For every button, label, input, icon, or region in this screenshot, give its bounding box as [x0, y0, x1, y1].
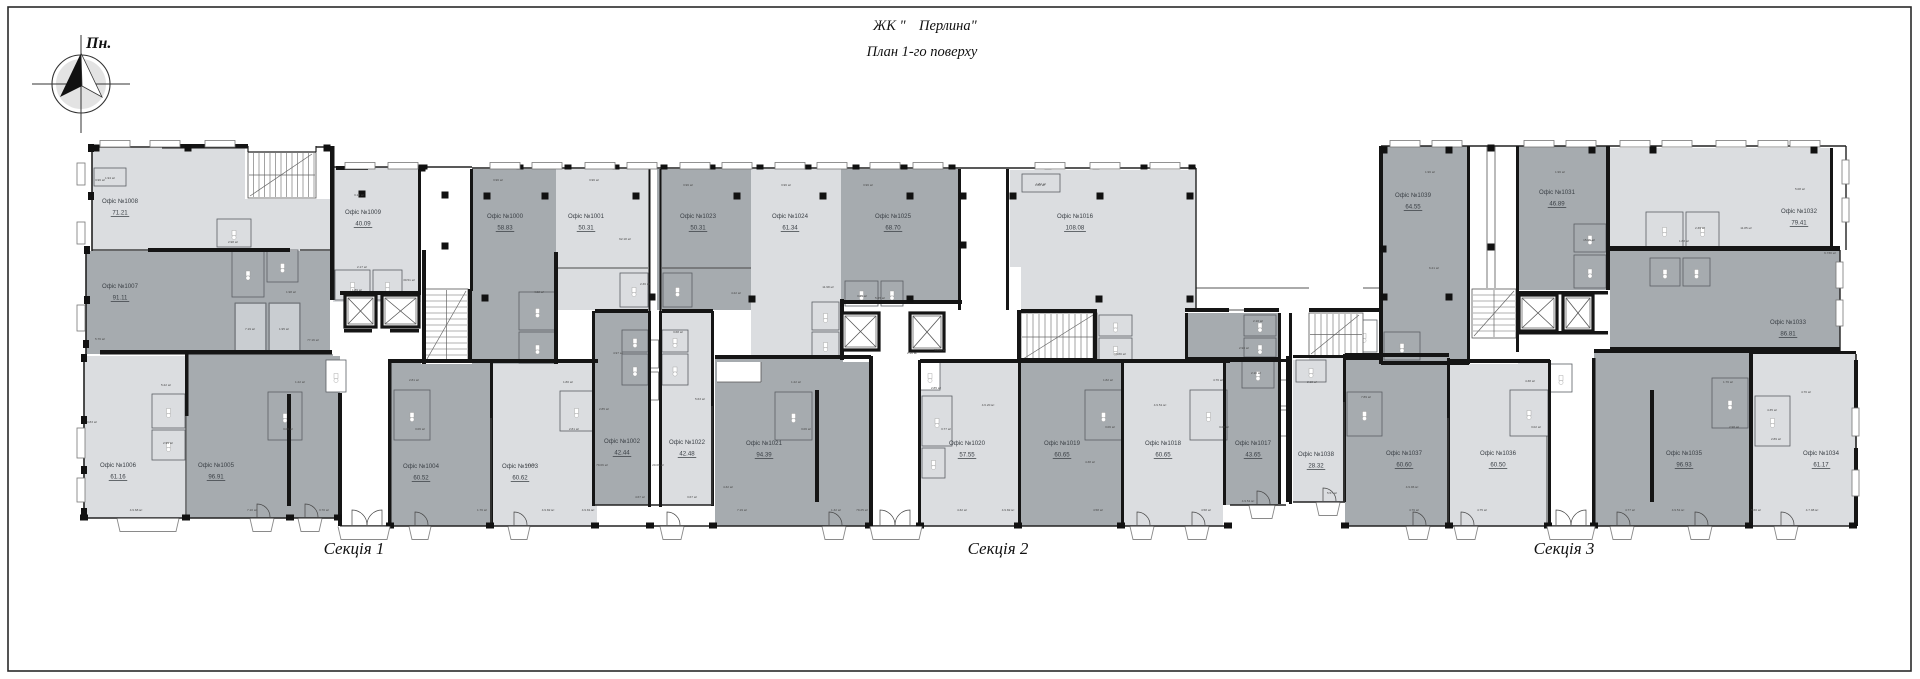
svg-text:3.83 м²: 3.83 м² — [87, 420, 97, 424]
svg-text:ЖК ": ЖК " — [872, 18, 907, 34]
svg-text:28.32: 28.32 — [1308, 463, 1324, 470]
svg-text:3.96 м²: 3.96 м² — [95, 178, 105, 182]
svg-text:5.60 м²: 5.60 м² — [1751, 508, 1761, 512]
svg-text:Офіс №1002: Офіс №1002 — [604, 438, 641, 445]
svg-text:Секція 3: Секція 3 — [1534, 539, 1595, 558]
svg-text:62.18 м²: 62.18 м² — [619, 237, 631, 241]
svg-text:60.50: 60.50 — [1490, 462, 1506, 469]
svg-text:42.44: 42.44 — [614, 450, 630, 457]
svg-text:3.96 м²: 3.96 м² — [493, 178, 503, 182]
svg-text:3.02 м²: 3.02 м² — [1531, 425, 1541, 429]
svg-text:Офіс №1001: Офіс №1001 — [568, 213, 605, 220]
svg-text:План 1-го поверху: План 1-го поверху — [866, 44, 978, 60]
svg-text:3.06 м²: 3.06 м² — [415, 427, 425, 431]
svg-text:86.81: 86.81 — [1780, 331, 1796, 338]
svg-text:96.93: 96.93 — [1676, 462, 1692, 469]
svg-text:4.58 м²: 4.58 м² — [1201, 508, 1211, 512]
svg-text:94.39: 94.39 — [756, 452, 772, 459]
svg-text:1.32 м²: 1.32 м² — [831, 508, 841, 512]
svg-text:Офіс №1016: Офіс №1016 — [1057, 213, 1094, 220]
svg-text:5.76 м²: 5.76 м² — [95, 337, 105, 341]
svg-text:4.38 м²: 4.38 м² — [1525, 379, 1535, 383]
svg-text:77.16 м²: 77.16 м² — [307, 338, 319, 342]
svg-text:7.89 м²: 7.89 м² — [1361, 395, 1371, 399]
svg-text:2.99 м²: 2.99 м² — [163, 441, 173, 445]
svg-text:20.06 м²: 20.06 м² — [652, 463, 664, 467]
svg-text:4.9.81 м²: 4.9.81 м² — [582, 508, 595, 512]
svg-text:Офіс №1039: Офіс №1039 — [1395, 192, 1432, 199]
svg-text:43.65: 43.65 — [1245, 452, 1261, 459]
svg-text:4.76 м²: 4.76 м² — [1409, 508, 1419, 512]
svg-text:2.10 м²: 2.10 м² — [1307, 380, 1317, 384]
svg-text:53.29 м²: 53.29 м² — [934, 348, 946, 352]
svg-text:5.22 м²: 5.22 м² — [161, 383, 171, 387]
svg-text:5.61 м²: 5.61 м² — [525, 463, 535, 467]
svg-text:4.32 м²: 4.32 м² — [723, 485, 733, 489]
svg-text:3.06 м²: 3.06 м² — [1219, 425, 1229, 429]
svg-text:1.95 м²: 1.95 м² — [279, 327, 289, 331]
svg-text:4.38 м²: 4.38 м² — [1085, 460, 1095, 464]
svg-text:1.22 м²: 1.22 м² — [295, 380, 305, 384]
svg-text:60.52: 60.52 — [413, 475, 429, 482]
svg-text:Офіс №1032: Офіс №1032 — [1781, 208, 1818, 215]
svg-text:2.36 м²: 2.36 м² — [1695, 226, 1705, 230]
svg-text:60.65: 60.65 — [1054, 452, 1070, 459]
svg-text:68.70: 68.70 — [885, 225, 901, 232]
svg-text:1.83 м²: 1.83 м² — [1679, 239, 1689, 243]
svg-text:50.31: 50.31 — [690, 225, 706, 232]
svg-text:11.98 м²: 11.98 м² — [822, 285, 834, 289]
svg-text:4.77 м²: 4.77 м² — [1625, 508, 1635, 512]
svg-text:4.75 м²: 4.75 м² — [1477, 508, 1487, 512]
svg-text:4.9.51 м²: 4.9.51 м² — [1672, 508, 1685, 512]
svg-text:58.83: 58.83 — [497, 225, 513, 232]
svg-text:Офіс №1004: Офіс №1004 — [403, 463, 440, 470]
svg-text:4.76 м²: 4.76 м² — [1801, 390, 1811, 394]
svg-text:Офіс №1005: Офіс №1005 — [198, 462, 235, 469]
svg-text:61.16: 61.16 — [110, 474, 126, 481]
svg-text:4.9.82 м²: 4.9.82 м² — [542, 508, 555, 512]
svg-text:4.58 м²: 4.58 м² — [1093, 508, 1103, 512]
svg-text:Офіс №1033: Офіс №1033 — [1770, 319, 1807, 326]
svg-text:Секція 1: Секція 1 — [324, 539, 385, 558]
svg-text:15.05 м²: 15.05 м² — [1583, 238, 1595, 242]
svg-text:Пн.: Пн. — [85, 35, 111, 52]
svg-text:11.85 м²: 11.85 м² — [1740, 226, 1752, 230]
svg-text:4.97 м²: 4.97 м² — [613, 351, 623, 355]
svg-text:7.19 м²: 7.19 м² — [245, 327, 255, 331]
svg-text:Офіс №1007: Офіс №1007 — [102, 283, 139, 290]
svg-text:Офіс №1021: Офіс №1021 — [746, 440, 783, 447]
svg-text:3.96 м²: 3.96 м² — [589, 178, 599, 182]
svg-text:4.9.51 м²: 4.9.51 м² — [1154, 403, 1167, 407]
svg-text:Офіс №1017: Офіс №1017 — [1235, 440, 1272, 447]
svg-text:Офіс №1036: Офіс №1036 — [1480, 450, 1517, 457]
svg-text:7.19 м²: 7.19 м² — [737, 508, 747, 512]
svg-text:1.80 м²: 1.80 м² — [563, 380, 573, 384]
svg-text:4.35 м²: 4.35 м² — [1767, 408, 1777, 412]
svg-text:4.9.96 м²: 4.9.96 м² — [1406, 485, 1419, 489]
svg-text:96.91: 96.91 — [208, 474, 224, 481]
svg-text:Офіс №1008: Офіс №1008 — [102, 198, 139, 205]
svg-text:3.06 м²: 3.06 м² — [801, 427, 811, 431]
svg-text:46.89: 46.89 — [1549, 201, 1565, 208]
svg-text:Секція 2: Секція 2 — [968, 539, 1029, 558]
svg-text:2.98 м²: 2.98 м² — [1239, 346, 1249, 350]
svg-text:Офіс №1024: Офіс №1024 — [772, 213, 809, 220]
svg-text:Офіс №1023: Офіс №1023 — [680, 213, 717, 220]
svg-text:Офіс №1000: Офіс №1000 — [487, 213, 524, 220]
svg-text:4.32 м²: 4.32 м² — [957, 508, 967, 512]
svg-text:61.34: 61.34 — [782, 225, 798, 232]
svg-text:1.22 м²: 1.22 м² — [791, 380, 801, 384]
svg-text:4.9.82 м²: 4.9.82 м² — [1002, 508, 1015, 512]
svg-text:42.48: 42.48 — [679, 451, 695, 458]
svg-text:1.89 м²: 1.89 м² — [352, 288, 362, 292]
svg-text:Перлина": Перлина" — [918, 18, 978, 34]
svg-text:Офіс №1009: Офіс №1009 — [345, 209, 382, 216]
svg-text:91.11: 91.11 — [113, 295, 128, 302]
svg-text:Офіс №1037: Офіс №1037 — [1386, 450, 1423, 457]
svg-text:1.98 м²: 1.98 м² — [286, 290, 296, 294]
svg-text:2.10 м²: 2.10 м² — [1253, 319, 1263, 323]
svg-text:57.55: 57.55 — [959, 452, 975, 459]
svg-text:3.96 м²: 3.96 м² — [781, 183, 791, 187]
svg-text:60.60: 60.60 — [1396, 462, 1412, 469]
svg-text:60.62: 60.62 — [512, 475, 528, 482]
svg-text:Офіс №1020: Офіс №1020 — [949, 440, 986, 447]
svg-text:30.51 м²: 30.51 м² — [403, 278, 415, 282]
svg-text:2.98 м²: 2.98 м² — [228, 240, 238, 244]
svg-text:60.65: 60.65 — [1155, 452, 1171, 459]
svg-text:50.31: 50.31 — [578, 225, 594, 232]
svg-text:1.94 м²: 1.94 м² — [105, 176, 115, 180]
svg-text:Офіс №1019: Офіс №1019 — [1044, 440, 1081, 447]
svg-text:1.76 м²: 1.76 м² — [477, 508, 487, 512]
svg-text:3.13 м²: 3.13 м² — [354, 193, 364, 197]
svg-text:2.85 м²: 2.85 м² — [599, 407, 609, 411]
svg-text:Офіс №1031: Офіс №1031 — [1539, 189, 1576, 196]
svg-text:4.76 м²: 4.76 м² — [1213, 378, 1223, 382]
svg-text:1.82 м²: 1.82 м² — [1103, 378, 1113, 382]
svg-text:4.22 м²: 4.22 м² — [534, 290, 544, 294]
svg-text:79.06 м²: 79.06 м² — [596, 463, 608, 467]
svg-text:Офіс №1034: Офіс №1034 — [1803, 450, 1840, 457]
svg-text:2.36 м²: 2.36 м² — [640, 282, 650, 286]
svg-text:2.16 м²: 2.16 м² — [907, 351, 917, 355]
svg-text:3.06 м²: 3.06 м² — [283, 427, 293, 431]
svg-text:Офіс №1022: Офіс №1022 — [669, 439, 706, 446]
svg-text:3.96 м²: 3.96 м² — [863, 183, 873, 187]
svg-text:4.7.98 м²: 4.7.98 м² — [1806, 508, 1819, 512]
svg-text:2.89 м²: 2.89 м² — [1771, 437, 1781, 441]
svg-text:3.70 м²: 3.70 м² — [319, 508, 329, 512]
svg-text:5.65 м²: 5.65 м² — [875, 296, 885, 300]
svg-text:6.21 м²: 6.21 м² — [1429, 266, 1439, 270]
svg-text:Офіс №1038: Офіс №1038 — [1298, 451, 1335, 458]
svg-text:98.80 м²: 98.80 м² — [1114, 352, 1126, 356]
svg-text:1.96 м²: 1.96 м² — [1555, 170, 1565, 174]
svg-text:3.67 м²: 3.67 м² — [687, 495, 697, 499]
svg-text:2.81 м²: 2.81 м² — [569, 427, 579, 431]
svg-text:4.6.20 м²: 4.6.20 м² — [982, 403, 995, 407]
svg-text:Офіс №1018: Офіс №1018 — [1145, 440, 1182, 447]
svg-text:79.41: 79.41 — [1791, 220, 1807, 227]
svg-text:5.63 м²: 5.63 м² — [695, 397, 705, 401]
svg-text:64.55: 64.55 — [1405, 204, 1421, 211]
svg-text:Офіс №1025: Офіс №1025 — [875, 213, 912, 220]
svg-text:2.10 м²: 2.10 м² — [1251, 371, 1261, 375]
svg-text:Офіс №1006: Офіс №1006 — [100, 462, 137, 469]
svg-text:2.81 м²: 2.81 м² — [409, 378, 419, 382]
svg-text:3.77 м²: 3.77 м² — [941, 427, 951, 431]
svg-text:3.06 м²: 3.06 м² — [1105, 425, 1115, 429]
svg-text:4.22 м²: 4.22 м² — [731, 291, 741, 295]
svg-text:1.82 м²: 1.82 м² — [1036, 182, 1046, 186]
svg-text:5.08 м²: 5.08 м² — [1795, 187, 1805, 191]
svg-text:71.21: 71.21 — [112, 210, 128, 217]
svg-text:3.96 м²: 3.96 м² — [683, 183, 693, 187]
svg-text:2.85 м²: 2.85 м² — [931, 386, 941, 390]
svg-text:Офіс №1035: Офіс №1035 — [1666, 450, 1703, 457]
svg-text:4.9.68 м²: 4.9.68 м² — [130, 508, 143, 512]
svg-text:4.67 м²: 4.67 м² — [635, 495, 645, 499]
svg-text:2.17 м²: 2.17 м² — [357, 265, 367, 269]
svg-text:7.10 м²: 7.10 м² — [247, 508, 257, 512]
svg-text:61.17: 61.17 — [1813, 462, 1829, 469]
svg-text:3.68 м²: 3.68 м² — [673, 330, 683, 334]
svg-text:1.96 м²: 1.96 м² — [1425, 170, 1435, 174]
svg-text:3.65 м²: 3.65 м² — [857, 294, 867, 298]
svg-text:4.9.51 м²: 4.9.51 м² — [1242, 499, 1255, 503]
svg-text:2.98 м²: 2.98 м² — [1729, 425, 1739, 429]
svg-text:1.76 м²: 1.76 м² — [1723, 380, 1733, 384]
svg-text:40.09: 40.09 — [355, 221, 371, 228]
svg-text:79.25 м²: 79.25 м² — [856, 508, 868, 512]
svg-text:108.08: 108.08 — [1066, 225, 1085, 232]
svg-text:6.730 м²: 6.730 м² — [1824, 251, 1836, 255]
